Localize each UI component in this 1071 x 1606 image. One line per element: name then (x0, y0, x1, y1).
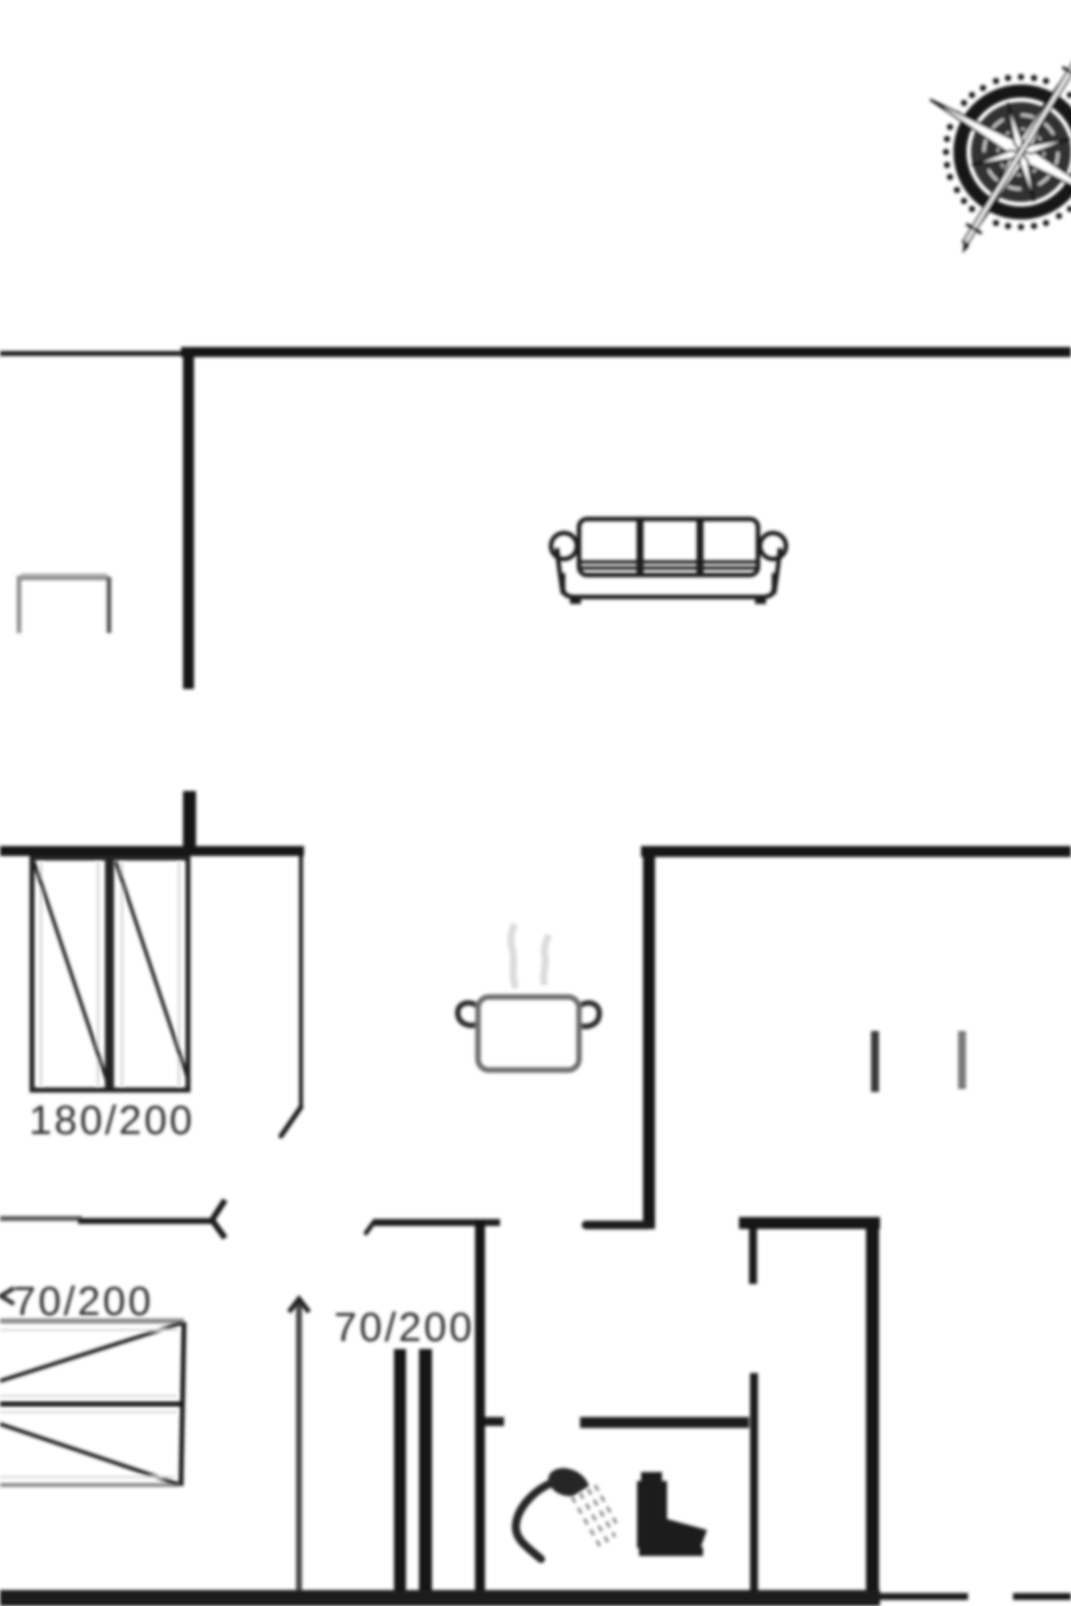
svg-text:180/200: 180/200 (29, 1097, 195, 1143)
svg-text:70/200: 70/200 (13, 1278, 153, 1324)
svg-text:70/200: 70/200 (334, 1304, 474, 1350)
